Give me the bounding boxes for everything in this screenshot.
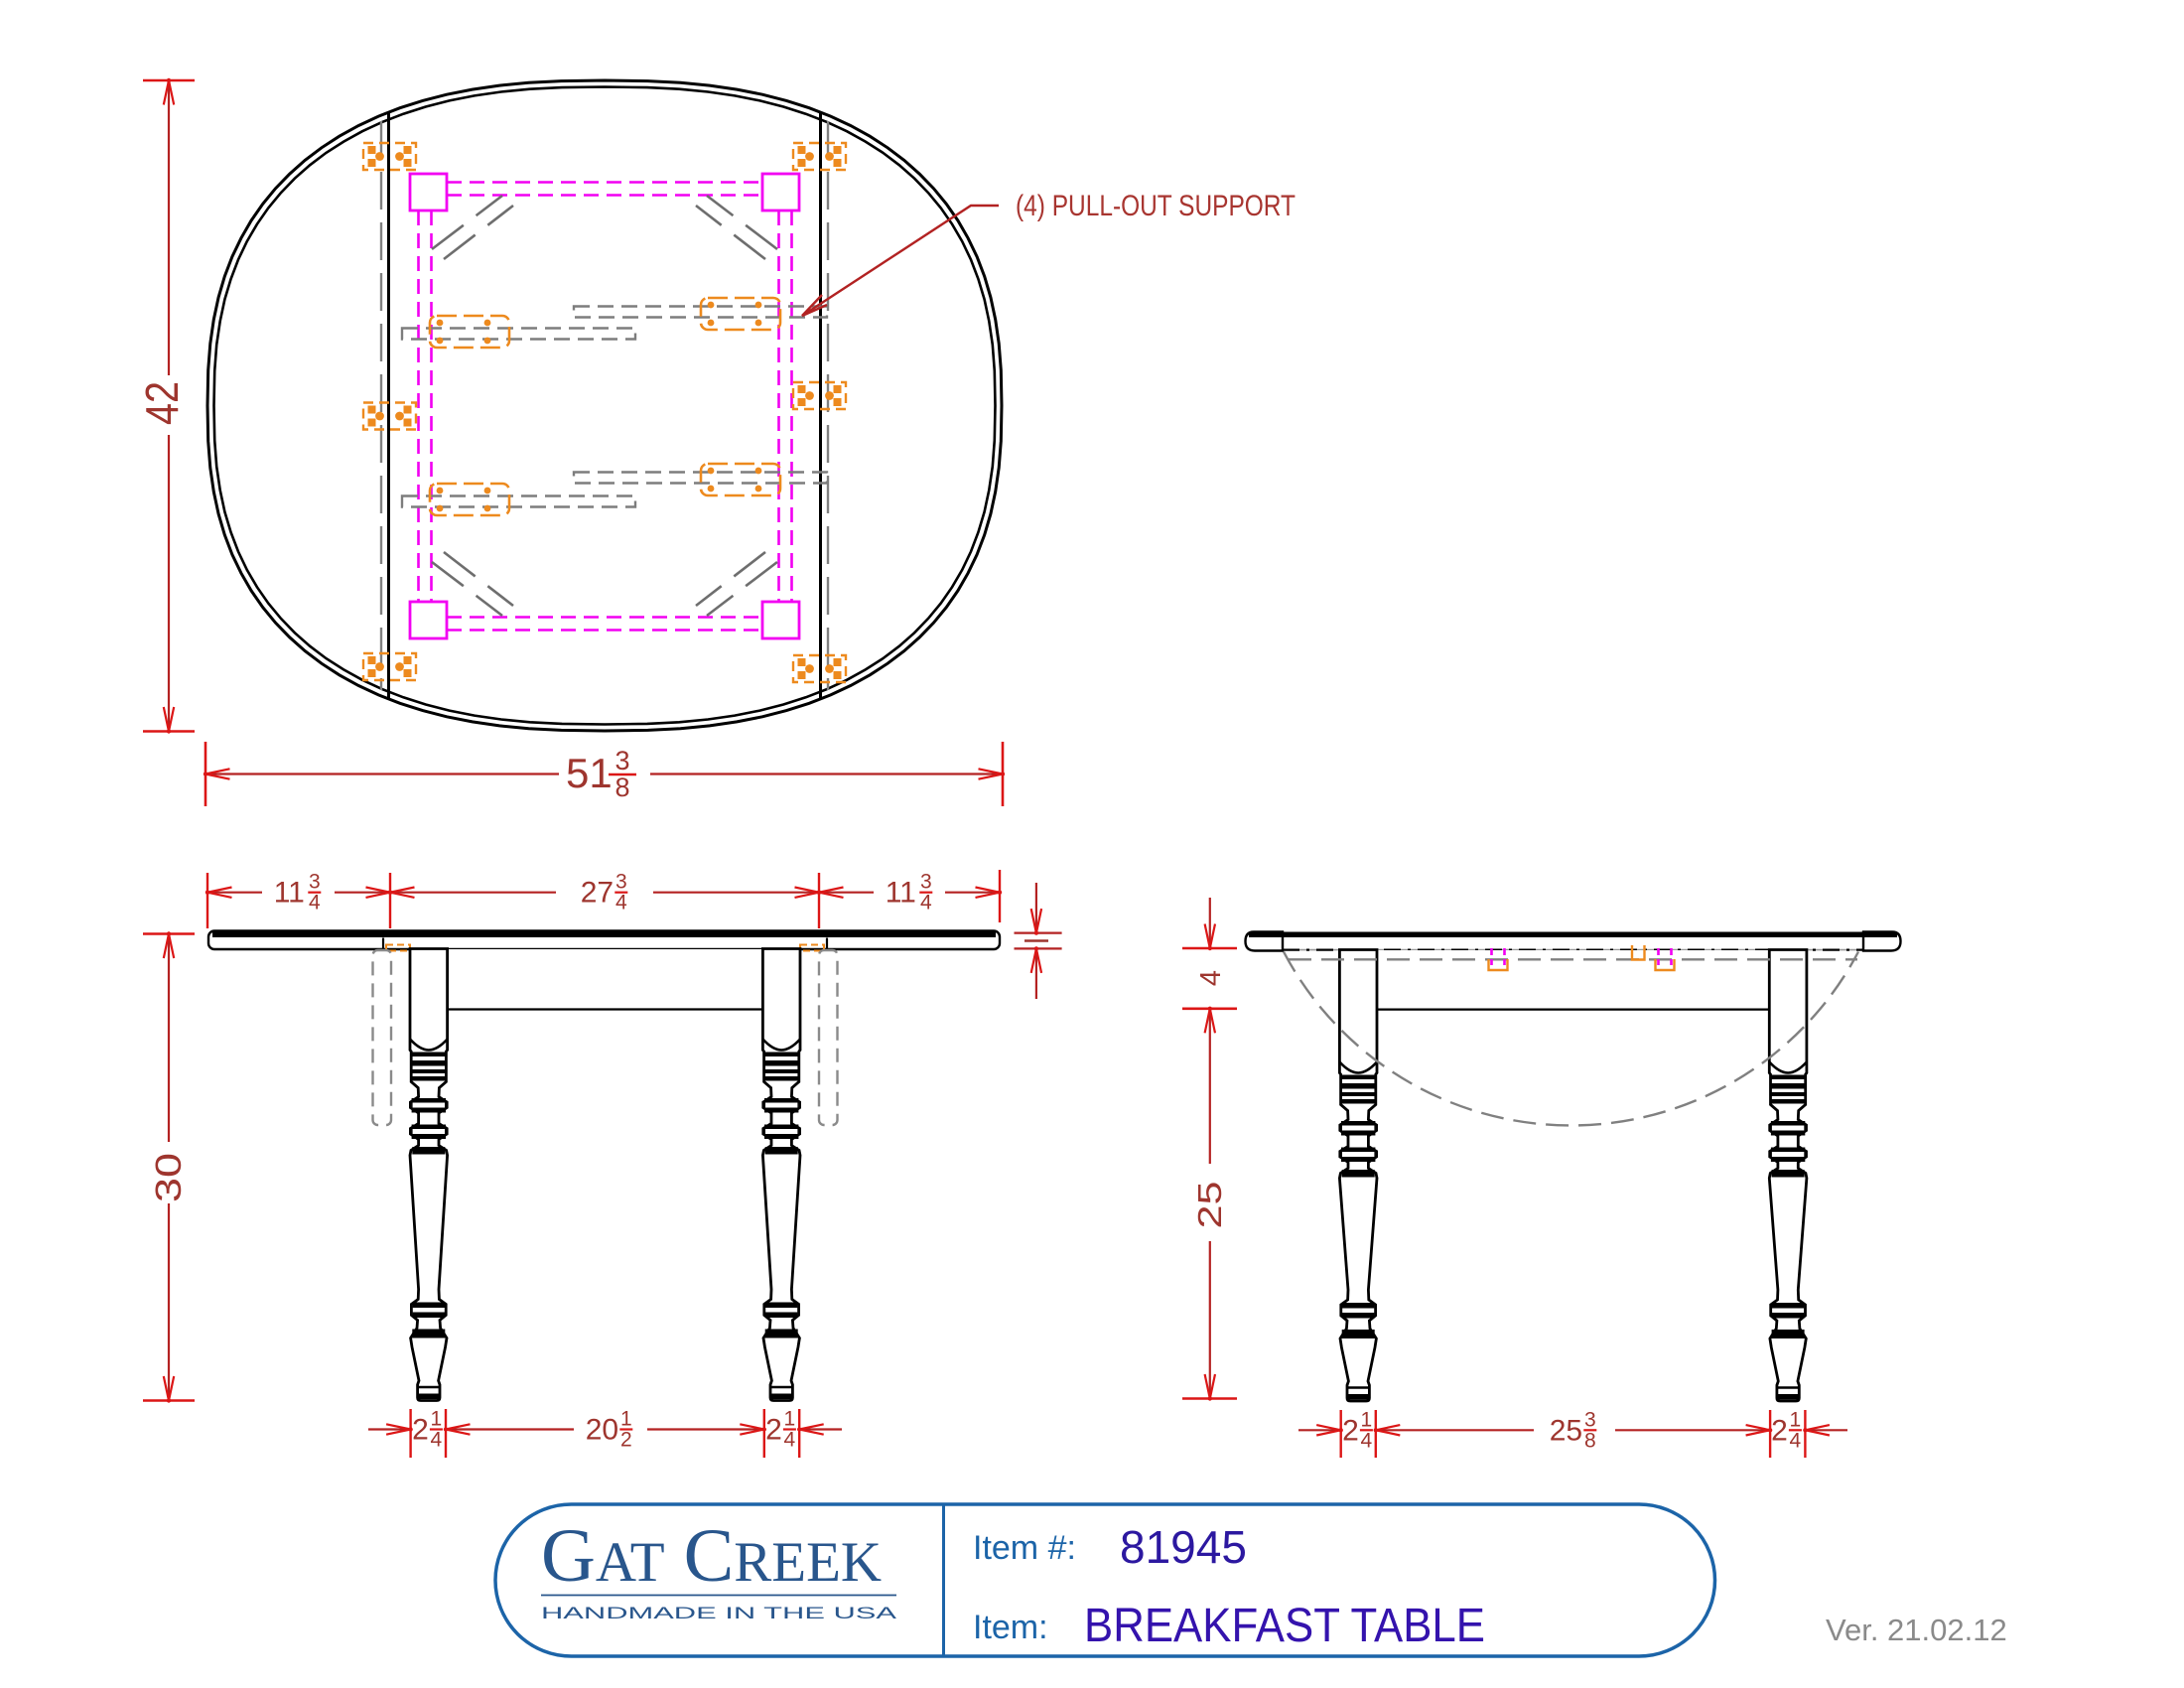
- svg-text:1: 1: [784, 1408, 796, 1431]
- svg-text:3: 3: [614, 746, 629, 775]
- svg-text:1: 1: [1790, 1408, 1802, 1431]
- svg-text:30: 30: [148, 1153, 189, 1202]
- svg-text:(4) PULL-OUT SUPPORT: (4) PULL-OUT SUPPORT: [1016, 190, 1296, 222]
- svg-text:11: 11: [886, 877, 916, 910]
- svg-text:3: 3: [920, 871, 932, 894]
- svg-text:2: 2: [1771, 1414, 1788, 1447]
- svg-text:2: 2: [765, 1414, 782, 1447]
- svg-text:25: 25: [1550, 1414, 1582, 1447]
- svg-text:BREAKFAST TABLE: BREAKFAST TABLE: [1084, 1600, 1485, 1652]
- svg-text:4: 4: [1195, 970, 1227, 986]
- svg-text:81945: 81945: [1120, 1521, 1247, 1573]
- svg-text:2: 2: [620, 1429, 632, 1452]
- svg-text:20: 20: [586, 1414, 618, 1447]
- svg-text:11: 11: [274, 877, 305, 910]
- svg-text:4: 4: [309, 892, 321, 914]
- svg-text:27: 27: [581, 877, 614, 910]
- svg-text:4: 4: [920, 892, 932, 914]
- svg-text:51: 51: [566, 750, 613, 796]
- svg-text:4: 4: [1361, 1429, 1373, 1452]
- svg-text:4: 4: [431, 1429, 443, 1452]
- svg-text:1: 1: [1361, 1408, 1373, 1431]
- svg-text:2: 2: [1342, 1414, 1359, 1447]
- svg-text:HANDMADE IN THE USA: HANDMADE IN THE USA: [541, 1604, 897, 1622]
- svg-text:25: 25: [1191, 1182, 1228, 1229]
- svg-text:1: 1: [431, 1408, 443, 1431]
- svg-text:4: 4: [615, 892, 627, 914]
- svg-text:Item:: Item:: [973, 1609, 1048, 1646]
- svg-text:3: 3: [1584, 1408, 1596, 1431]
- svg-text:Item #:: Item #:: [973, 1529, 1076, 1567]
- svg-text:8: 8: [614, 773, 629, 802]
- svg-text:42: 42: [136, 381, 188, 425]
- svg-text:4: 4: [1790, 1429, 1802, 1452]
- svg-text:8: 8: [1584, 1429, 1596, 1452]
- svg-text:3: 3: [615, 871, 627, 894]
- svg-text:4: 4: [784, 1429, 796, 1452]
- svg-text:1: 1: [620, 1408, 632, 1431]
- svg-text:Ver. 21.02.12: Ver. 21.02.12: [1826, 1613, 2007, 1647]
- svg-text:2: 2: [412, 1414, 429, 1447]
- svg-text:3: 3: [309, 871, 321, 894]
